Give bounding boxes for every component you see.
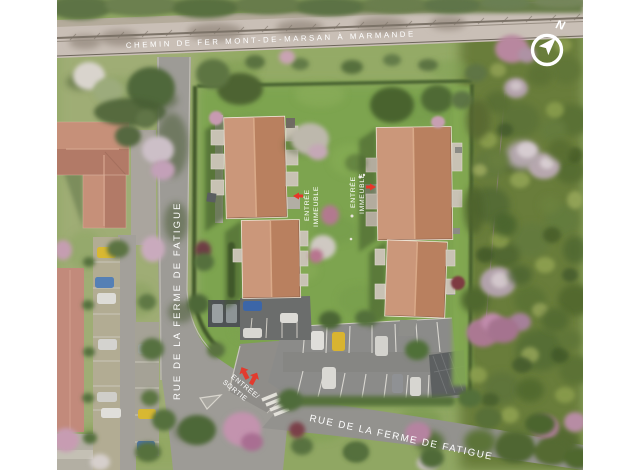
svg-text:RUE DE LA FERME DE FATIGUE: RUE DE LA FERME DE FATIGUE xyxy=(172,201,183,400)
svg-text:IMMEUBLE: IMMEUBLE xyxy=(313,186,320,227)
svg-text:ENTRÉE: ENTRÉE xyxy=(348,176,357,208)
svg-text:ENTRÉE: ENTRÉE xyxy=(302,189,311,221)
svg-text:IMMEUBLE: IMMEUBLE xyxy=(359,173,366,214)
